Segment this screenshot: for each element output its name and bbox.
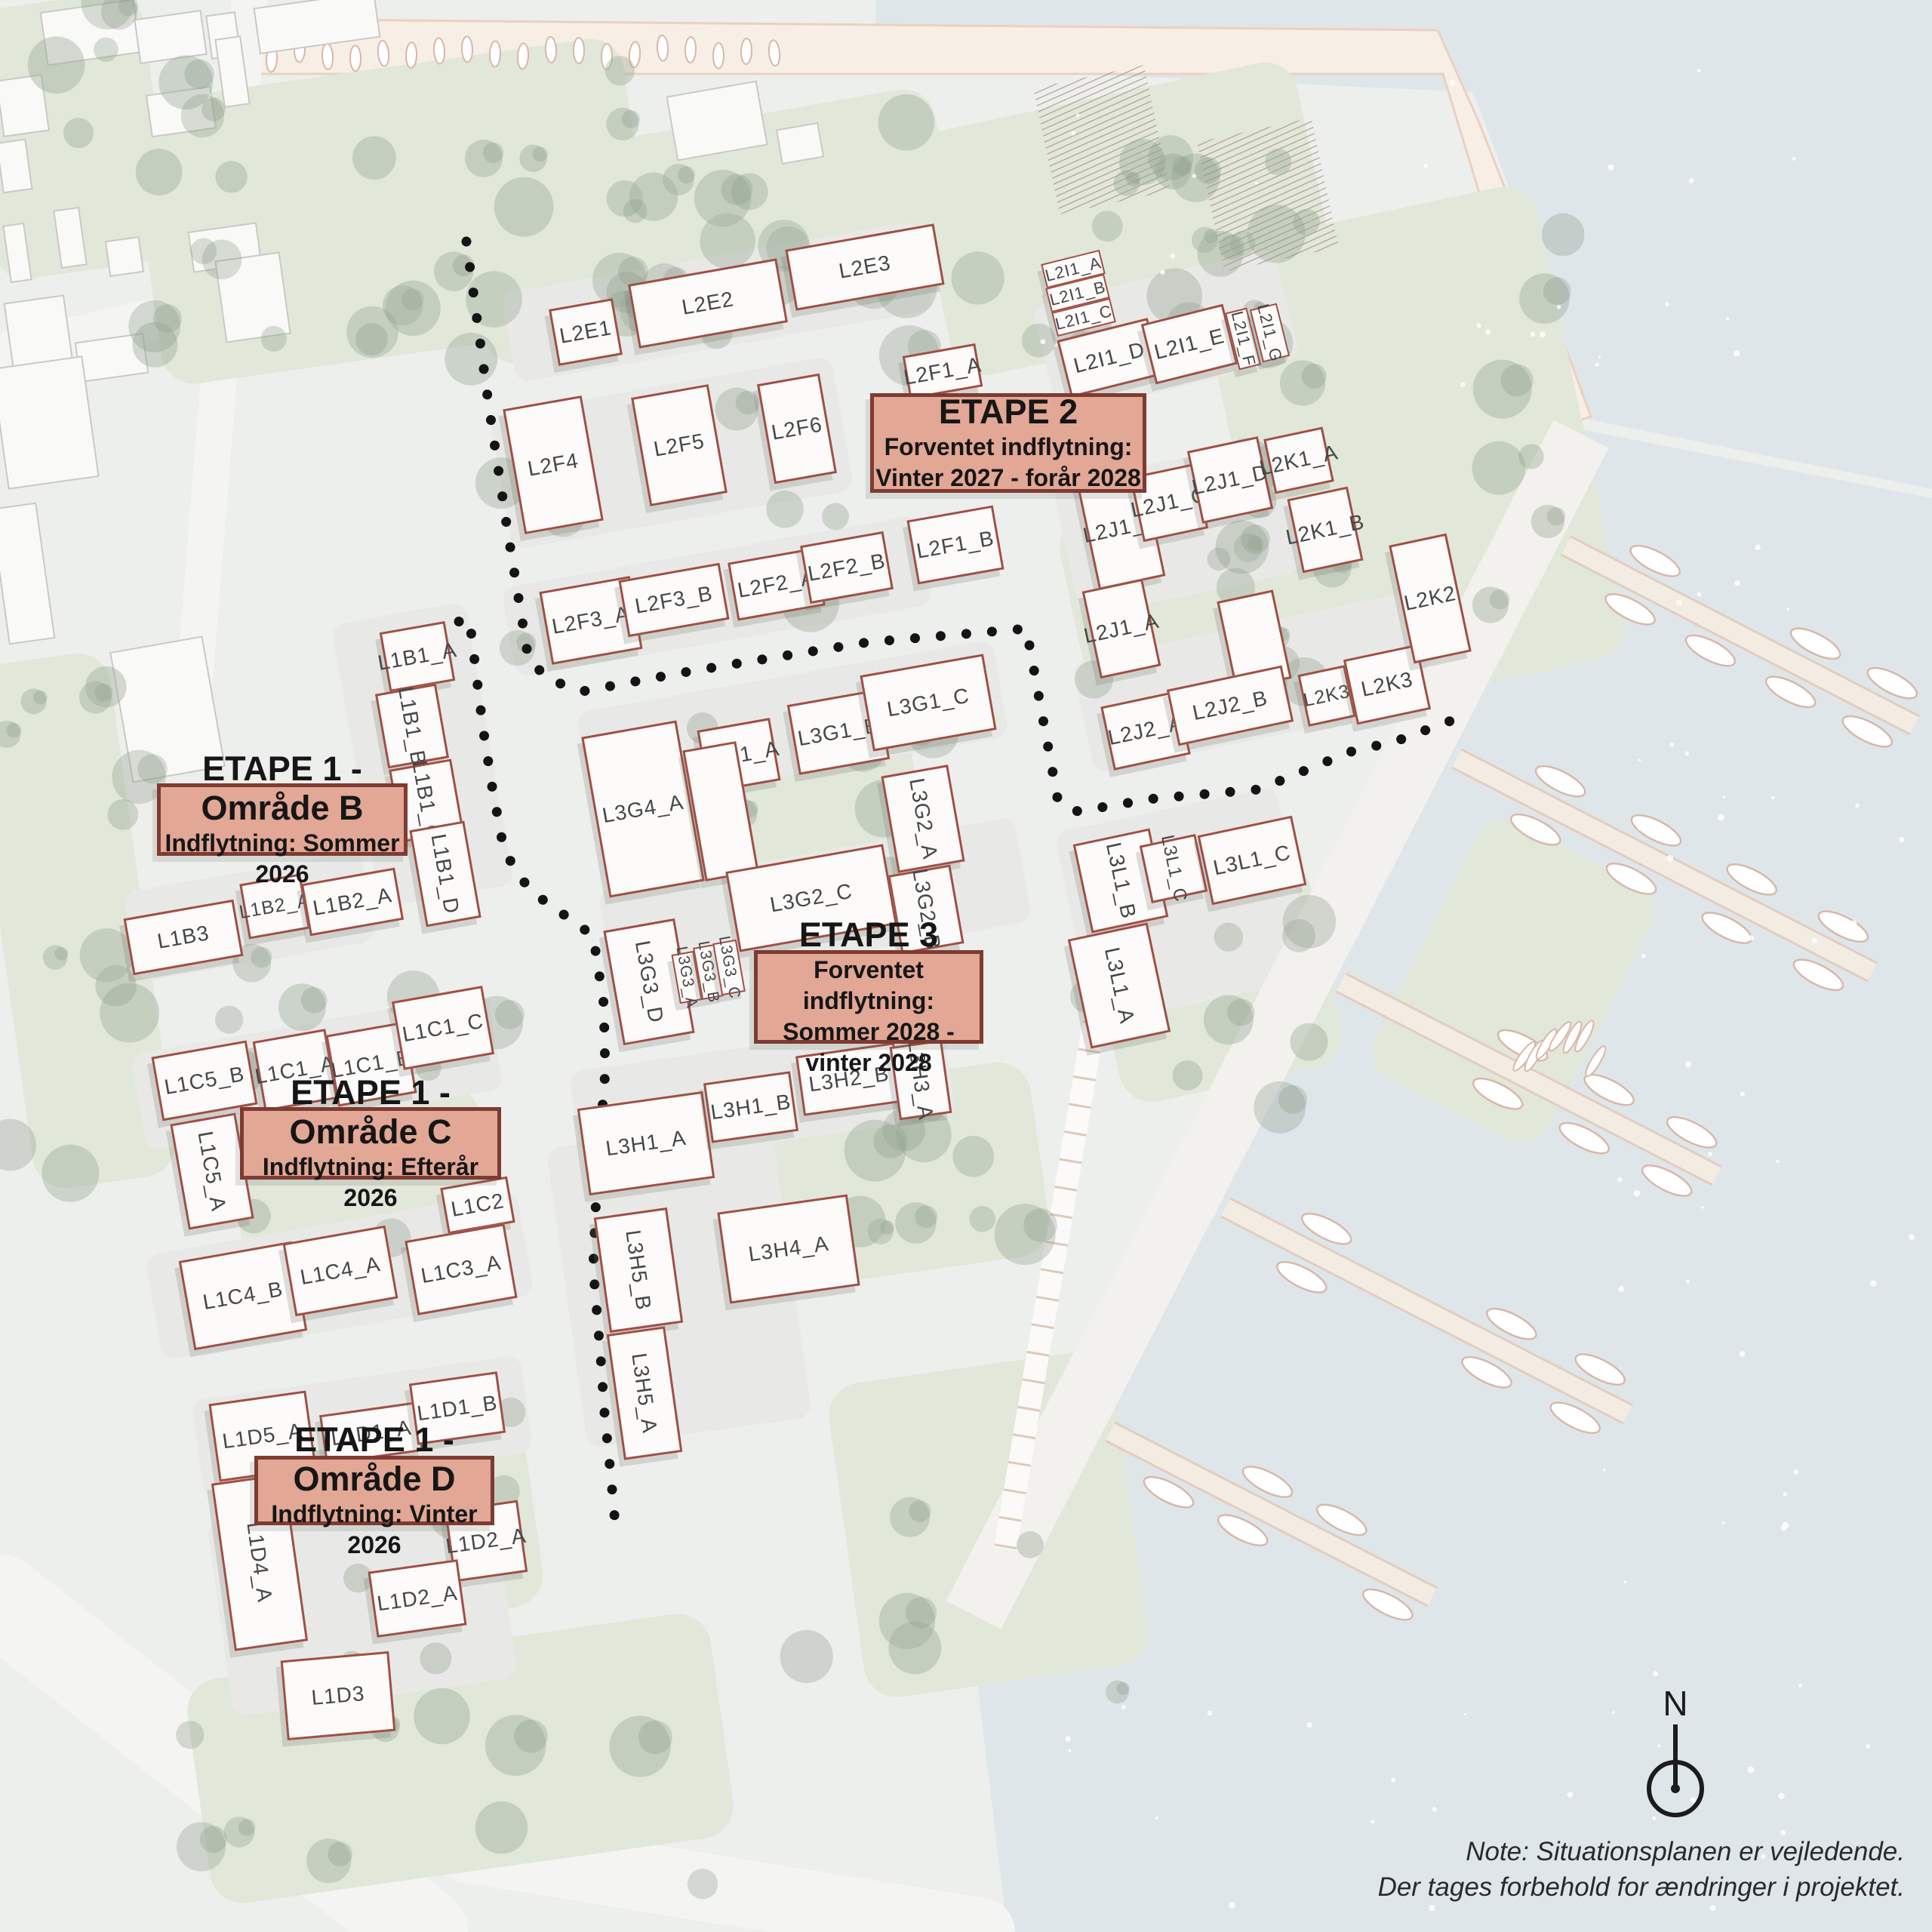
building-label: L3H1_A [605,1126,688,1161]
building-label: L1C1_C [401,1009,486,1047]
phase-title: ETAPE 1 - Område B [161,749,404,828]
north-label: N [1623,1683,1728,1724]
building-label: L2E2 [680,287,736,320]
building-label: L1B1_A [376,638,459,675]
building-l1d2_a: L1D2_A [368,1559,466,1638]
phase-title: ETAPE 1 - Område D [258,1420,491,1499]
building-l1b1_a: L1B1_A [380,621,456,692]
building-l3h1_a: L3H1_A [577,1091,715,1195]
building-label: L2K3 [1359,667,1416,702]
building-label: L2J1_D [1190,460,1271,500]
building-label: L3L1_C [1156,833,1191,904]
north-arrow-dot [1671,1784,1680,1793]
phase-subtitle: Vinter 2027 - forår 2028 [875,463,1141,494]
building-label: L3G4_A [601,790,686,828]
building-label: L3G2_A [904,777,942,862]
building-label: L3G3_D [630,939,669,1025]
building-label: L2J2_B [1190,686,1269,725]
site-plan-map: L2E1L2E2L2E3L2F4L2F5L2F6L2F3_AL2F3_BL2F2… [0,0,1932,1932]
building-label: L3L1_B [1101,841,1141,921]
phase-subtitle: Sommer 2028 - vinter 2028 [758,1017,980,1078]
building-label: L1C4_A [298,1252,382,1290]
building-label: L2I1_E [1152,324,1227,365]
map-note: Note: Situationsplanen er vejledende. De… [1378,1834,1905,1906]
building-label: L2E1 [558,315,614,349]
phase-subtitle: Indflytning: Efterår 2026 [244,1152,497,1214]
building-label: L3L1_C [1211,841,1293,881]
building-label: L1B3 [155,921,211,954]
building-label: L3G1_C [885,684,971,722]
building-label: L2K3 [1301,680,1352,711]
building-label: L1C4_B [201,1277,285,1315]
phase-title: ETAPE 3 [799,915,938,955]
building-label: L2I1_D [1071,337,1147,378]
building-l2j1_d: L2J1_D [1187,436,1273,524]
building-label: L1C3_A [419,1251,503,1288]
phase-subtitle: Forventet indflytning: [884,432,1133,463]
building-label: L3L1_A [1100,946,1140,1026]
building-label: L1C5_B [162,1062,246,1100]
phase-label-etape-2: ETAPE 2Forventet indflytning:Vinter 2027… [870,393,1146,493]
building-label: L2F6 [770,412,824,445]
building-label: L2K2 [1402,581,1459,616]
building-label: L3H5_A [627,1352,663,1435]
building-label: L2F2_B [806,549,888,586]
building-l3h4_a: L3H4_A [717,1194,860,1303]
phase-label-etape-3: ETAPE 3Forventet indflytning:Sommer 2028… [754,950,983,1044]
phase-subtitle: Indflytning: Sommer 2026 [161,828,404,890]
map-note-line2: Der tages forbehold for ændringer i proj… [1378,1869,1905,1905]
phase-title: ETAPE 2 [939,392,1078,432]
building-label: L2F5 [652,429,706,461]
building-label: L2E3 [837,251,893,284]
building-label: L2F3_A [550,601,632,639]
building-label: L2K1_B [1284,509,1367,549]
building-label: L2J1_A [1081,609,1161,648]
phase-label-etape-1-omraade-c: ETAPE 1 - Område CIndflytning: Efterår 2… [240,1107,501,1180]
phase-subtitle: Forventet indflytning: [758,955,980,1017]
building-label: L1B1_D [426,832,464,915]
building-label: L2F1_B [915,526,996,564]
building-l1d3: L1D3 [281,1651,396,1740]
building-label: L1D2_A [376,1581,460,1617]
phase-subtitle: Indflytning: Vinter 2026 [258,1499,491,1561]
building-label: L3G2_C [768,879,854,918]
building-label: L2F4 [526,448,580,481]
building-label: L2F3_B [633,581,715,619]
phase-label-etape-1-omraade-b: ETAPE 1 - Område BIndflytning: Sommer 20… [157,783,408,856]
building-label: L1C5_A [193,1129,231,1213]
building-label: L2F1_A [902,352,983,390]
building-label: L2K1_A [1257,440,1340,480]
building-l2e1: L2E1 [549,298,623,366]
building-l3h1_b: L3H1_B [703,1071,798,1143]
building-label: L3H5_B [621,1229,657,1312]
building-label: L1B2_A [238,889,312,923]
phase-title: ETAPE 1 - Område C [244,1073,497,1152]
building-label: L1D3 [310,1681,365,1710]
map-note-line1: Note: Situationsplanen er vejledende. [1378,1834,1905,1869]
building-label: L3H1_B [709,1090,793,1125]
phase-label-etape-1-omraade-d: ETAPE 1 - Område DIndflytning: Vinter 20… [254,1456,494,1525]
building-l3l1_c: L3L1_C [1140,834,1208,903]
building-label: L3H4_A [747,1232,831,1267]
north-arrow: N [1623,1683,1728,1834]
